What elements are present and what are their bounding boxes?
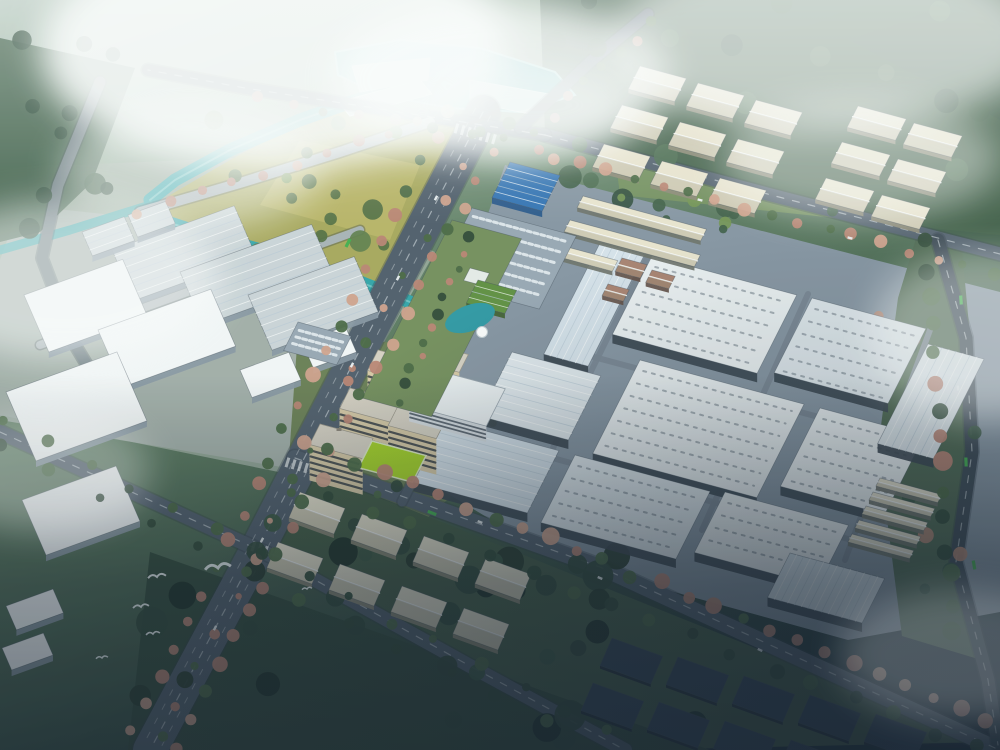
scene-svg bbox=[0, 0, 1000, 750]
shading bbox=[0, 0, 1000, 750]
aerial-rendering bbox=[0, 0, 1000, 750]
